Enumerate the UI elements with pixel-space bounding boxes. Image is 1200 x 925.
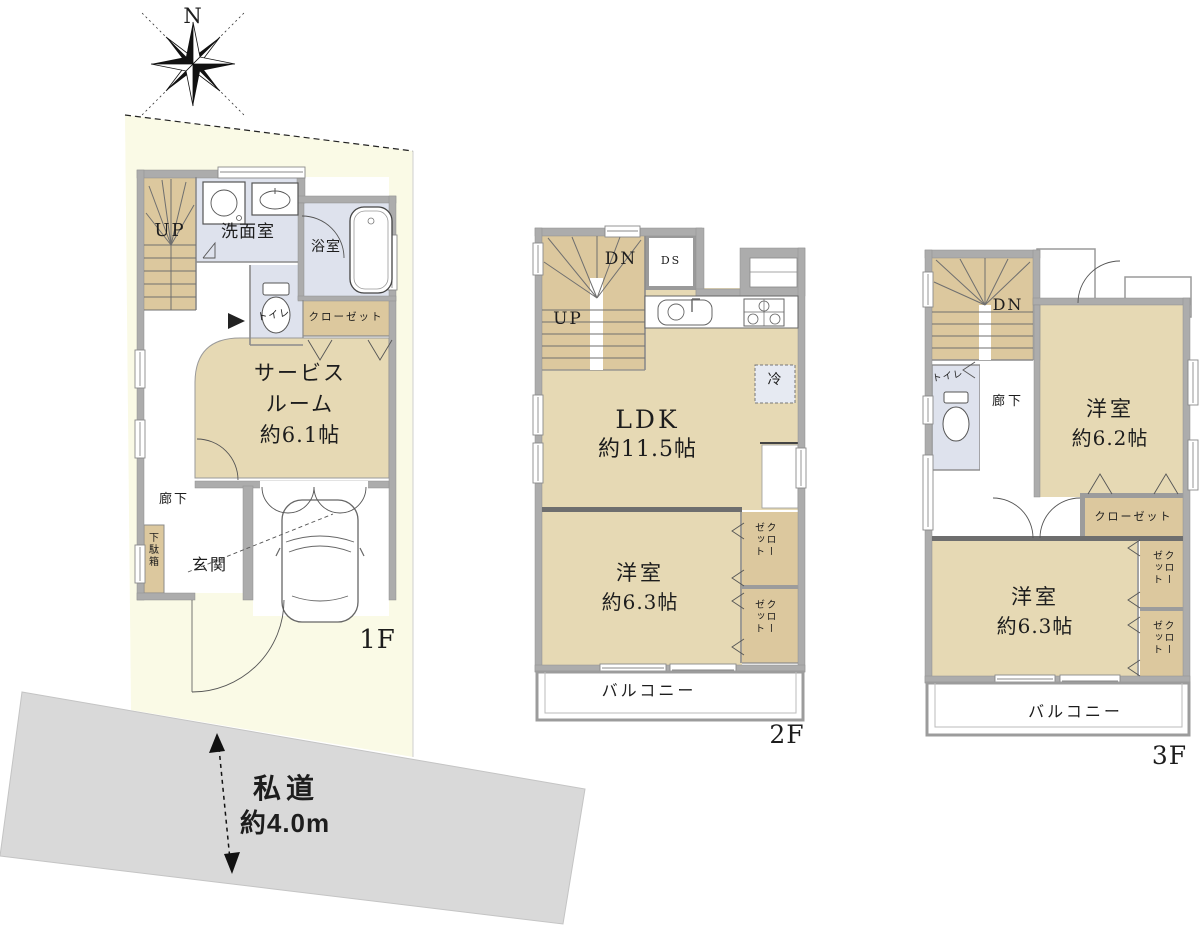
f2-stairs-up-label: UP xyxy=(538,309,598,330)
f3-stairs-dn-label: DN xyxy=(978,295,1038,315)
f1-hallway-label: 廊下 xyxy=(146,492,202,508)
f1-service-room-line2: ルーム xyxy=(215,391,385,417)
f1-service-room-line3: 約6.1帖 xyxy=(215,422,385,448)
washing-machine-icon xyxy=(203,182,245,224)
floorplan-canvas: N 私道 約4.0m UP 洗面室 浴室 トイレ クローゼット サービス ルーム… xyxy=(0,0,1200,925)
f3-closet-a-label: クローゼット xyxy=(1085,510,1182,524)
f1-shoe-cabinet-label: 下駄箱 xyxy=(146,532,158,592)
toilet-icon-3f xyxy=(943,392,969,441)
f2-duct-space-label: DS xyxy=(641,254,701,268)
road-width-label: 約4.0m xyxy=(222,807,348,840)
floor2-plan xyxy=(533,226,806,720)
f1-service-room-line1: サービス xyxy=(215,360,385,386)
f1-entrance-label: 玄関 xyxy=(180,555,240,575)
f3-closet-b-label: クローゼット xyxy=(1150,550,1173,592)
f1-bathroom-label: 浴室 xyxy=(300,239,352,257)
f2-floor-label: 2F xyxy=(762,719,812,750)
f2-refrigerator-label: 冷 xyxy=(755,372,795,390)
compass-north-label: N xyxy=(181,3,205,29)
f1-washroom-label: 洗面室 xyxy=(203,222,293,243)
sink-icon xyxy=(252,183,298,215)
f3-room-a-line1: 洋室 xyxy=(1035,396,1185,422)
f3-closet-c-label: クローゼット xyxy=(1150,620,1173,662)
stove-icon xyxy=(744,299,784,326)
f1-closet-label: クローゼット xyxy=(300,311,392,324)
f3-floor-label: 3F xyxy=(1142,740,1197,771)
f3-hallway-label: 廊下 xyxy=(980,394,1036,410)
f2-closet-bottom-label: クローゼット xyxy=(752,599,775,641)
f3-room-a-line2: 約6.2帖 xyxy=(1035,426,1185,451)
floor3-plan xyxy=(923,249,1198,735)
f1-stairs-up-label: UP xyxy=(140,220,200,243)
car-icon xyxy=(276,500,364,622)
f2-closet-top-label: クローゼット xyxy=(752,522,775,564)
kitchen-counter xyxy=(645,296,798,328)
f2-room-line2: 約6.3帖 xyxy=(565,590,715,615)
f2-ldk-line1: LDK xyxy=(570,404,725,435)
f3-balcony-label: バルコニー xyxy=(1013,702,1138,722)
f2-ldk-line2: 約11.5帖 xyxy=(570,436,725,464)
bathtub-icon xyxy=(350,207,392,293)
f2-balcony-label: バルコニー xyxy=(589,681,709,701)
f1-floor-label: 1F xyxy=(350,624,405,657)
kitchen-sink-icon xyxy=(658,299,712,325)
road-name-label: 私道 xyxy=(230,771,342,806)
f3-room-b-line1: 洋室 xyxy=(960,584,1110,610)
f3-room-b-line2: 約6.3帖 xyxy=(960,614,1110,639)
f2-room-line1: 洋室 xyxy=(565,560,715,586)
